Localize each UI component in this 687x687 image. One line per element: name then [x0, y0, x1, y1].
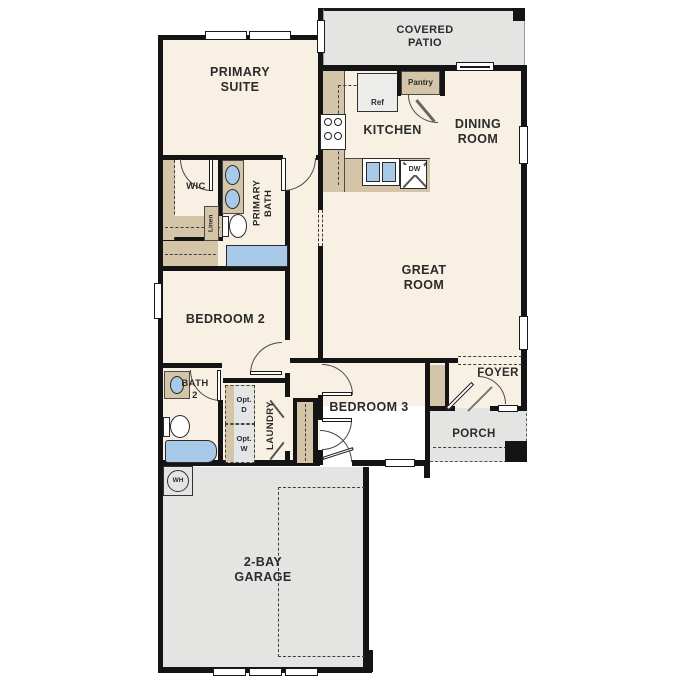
- wall: [352, 460, 385, 466]
- wall: [285, 270, 290, 340]
- room-label-covered-patio: COVERED PATIO: [355, 21, 495, 53]
- wall: [424, 466, 430, 478]
- wall: [290, 358, 458, 363]
- room-label-wic: WIC: [168, 180, 224, 194]
- window: [519, 316, 528, 350]
- toilet-tank: [163, 417, 170, 437]
- sink: [225, 165, 240, 185]
- wall: [285, 383, 290, 397]
- foyer-closet: [430, 365, 445, 406]
- dishwasher: DW: [400, 160, 427, 189]
- room-label-foyer: FOYER: [466, 365, 530, 381]
- window: [385, 459, 415, 467]
- cased-opening: [318, 210, 323, 246]
- room-label-primary-suite: PRIMARY SUITE: [165, 60, 315, 100]
- wall: [318, 246, 323, 358]
- opt-washer-label: Opt. W: [234, 425, 254, 462]
- refrigerator-label: Ref: [358, 97, 397, 109]
- toilet-tank: [222, 216, 229, 237]
- room-label-dining-room: DINING ROOM: [428, 112, 528, 152]
- laundry-opt-washer: Opt. W: [225, 424, 255, 463]
- bedroom2-closet: [163, 241, 218, 266]
- wall: [440, 71, 445, 96]
- window: [249, 31, 291, 40]
- kitchen-sink: [362, 158, 400, 186]
- sliding-door-line: [460, 66, 490, 68]
- refrigerator: Ref: [357, 73, 398, 112]
- garage-door-panel: [213, 668, 246, 676]
- room-label-bedroom-3: BEDROOM 3: [308, 399, 430, 417]
- window: [317, 20, 325, 53]
- linen-closet: Linen: [204, 206, 219, 241]
- floor-plan: WH Linen Opt. D Opt. W Ref Pantry DW: [0, 0, 687, 687]
- toilet-bowl: [229, 214, 247, 238]
- room-label-primary-bath: PRIMARY BATH: [246, 162, 280, 244]
- garage-door-panel: [285, 668, 318, 676]
- door-leaf: [281, 158, 286, 191]
- room-label-laundry: LAUNDRY: [258, 394, 284, 458]
- toilet-bowl: [170, 415, 190, 438]
- bathtub: [226, 245, 288, 267]
- foyer-dashed-line: [458, 356, 522, 357]
- room-label-bedroom-2: BEDROOM 2: [158, 311, 293, 329]
- wall: [518, 406, 527, 411]
- garage-door-panel: [249, 668, 282, 676]
- porch-dashed-line: [433, 447, 507, 448]
- window: [205, 31, 247, 40]
- door-leaf: [322, 418, 352, 422]
- porch-corner-post: [505, 441, 527, 462]
- room-label-great-room: GREAT ROOM: [364, 258, 484, 298]
- opt-dryer-label: Opt. D: [234, 386, 254, 423]
- water-heater-icon: WH: [167, 470, 189, 492]
- wall: [445, 363, 449, 407]
- bathtub: [165, 440, 217, 463]
- wall: [285, 451, 290, 465]
- patio-corner-post: [513, 8, 525, 21]
- dishwasher-label: DW: [405, 165, 424, 175]
- window: [498, 405, 518, 412]
- sink: [225, 189, 240, 209]
- wall: [218, 400, 223, 460]
- room-label-porch: PORCH: [436, 426, 512, 442]
- door-leaf: [322, 392, 352, 396]
- pantry: Pantry: [401, 71, 440, 95]
- laundry-opt-dryer: Opt. D: [225, 385, 255, 424]
- door-leaf: [250, 371, 282, 375]
- wall: [158, 363, 222, 368]
- room-label-garage: 2-BAY GARAGE: [193, 552, 333, 588]
- room-label-bath-2: BATH 2: [170, 377, 220, 403]
- wall: [158, 465, 163, 672]
- wall: [223, 378, 290, 383]
